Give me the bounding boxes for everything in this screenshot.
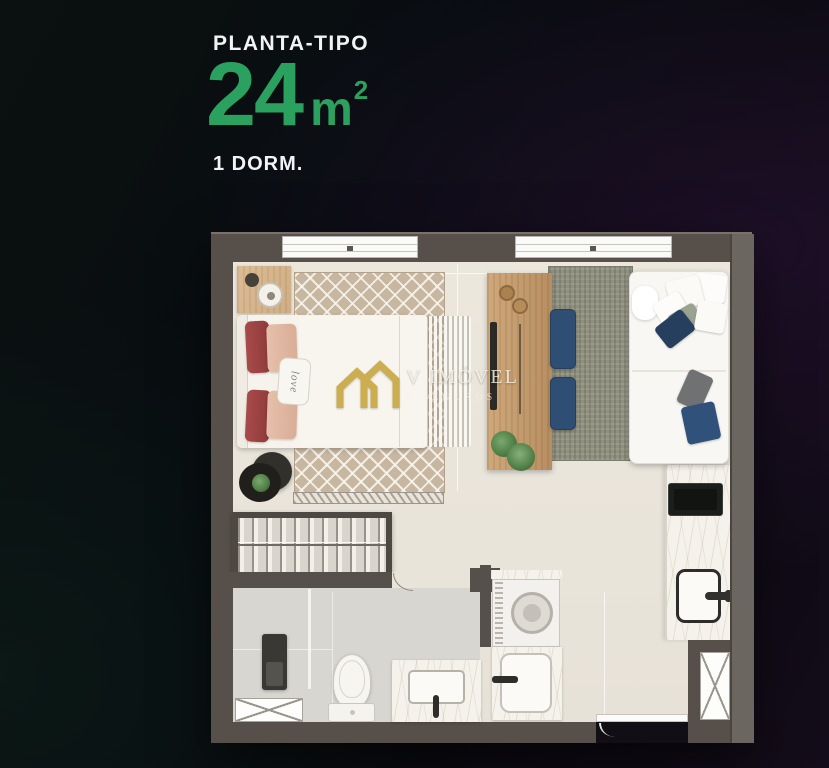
lamp-center: [267, 292, 275, 300]
duct-shaft: [700, 652, 730, 720]
washer-door: [511, 592, 553, 634]
window-latch: [590, 246, 596, 251]
tile-grout-line: [604, 592, 605, 718]
window-frame-line: [283, 251, 417, 252]
sofa-seam-line: [632, 370, 726, 372]
area-exponent: 2: [354, 75, 368, 106]
washing-machine: [492, 579, 560, 647]
bathroom-wall: [228, 572, 392, 588]
shower-fixture-panel: [266, 662, 283, 686]
shaft-cross-line: [236, 699, 302, 721]
wood-decor-bowl: [499, 285, 515, 301]
toilet-seat: [339, 660, 365, 698]
nightstand-decor: [245, 273, 259, 287]
toilet-tank: [328, 703, 375, 722]
duct-shaft: [235, 698, 303, 722]
listing-floorplan-page: PLANTA-TIPO 24 m 2 1 DORM.: [0, 0, 829, 768]
navy-cushion: [680, 401, 721, 445]
potted-plant: [507, 443, 535, 471]
tile-grout-line: [332, 592, 333, 718]
watermark-brand: V IMÓVEL: [406, 366, 519, 389]
navy-pouf: [550, 309, 576, 369]
cooktop: [668, 483, 723, 516]
vanity-faucet: [433, 695, 439, 718]
laundry-partition-wall: [480, 565, 491, 647]
wardrobe: [232, 512, 392, 579]
living-window: [515, 236, 672, 258]
shaft-cross-line: [701, 653, 729, 719]
washer-control-panel: [495, 582, 503, 644]
dormitory-count-label: 1 DORM.: [213, 153, 303, 176]
cooktop-surface: [674, 489, 717, 510]
toilet: [333, 654, 371, 708]
brand-watermark: V IMÓVEL E SEGUROS: [336, 352, 536, 416]
bedroom-window: [282, 236, 418, 258]
entrance-door: [596, 714, 688, 722]
sofa: [629, 271, 729, 464]
toilet-flush-button: [350, 710, 355, 715]
shower-fixture: [262, 634, 287, 690]
washer-door-center: [523, 604, 541, 622]
area-heading: 24 m 2: [206, 50, 368, 140]
shower-glass-partition: [308, 589, 311, 689]
laundry-basin: [500, 653, 552, 713]
closet-sliding-door: [293, 492, 444, 504]
bathroom-vanity: [392, 660, 481, 722]
wardrobe-rail: [238, 544, 386, 546]
watermark-tagline: E SEGUROS: [406, 392, 519, 403]
window-latch: [347, 246, 353, 251]
floorplan: love: [211, 232, 752, 743]
nightstand: [237, 266, 291, 313]
love-pillow: love: [276, 357, 311, 406]
laundry-counter: [491, 570, 562, 579]
laundry-faucet: [492, 676, 518, 683]
table-lamp: [257, 282, 283, 308]
wardrobe-rail-highlight: [238, 542, 386, 543]
window-frame-line: [516, 251, 671, 252]
watermark-texts: V IMÓVEL E SEGUROS: [406, 366, 519, 403]
area-number: 24: [206, 50, 302, 140]
love-pillow-text: love: [287, 370, 301, 393]
window-frame-line: [283, 244, 417, 245]
laundry-sink-unit: [492, 647, 562, 720]
area-unit: m: [310, 86, 353, 134]
succulent-plant: [252, 474, 270, 492]
wood-decor-bowl: [512, 298, 528, 314]
double-house-logo-icon: [336, 358, 400, 410]
window-frame-line: [516, 244, 671, 245]
navy-pouf: [550, 377, 576, 430]
white-cushion: [694, 300, 729, 335]
exterior-wall-right: [730, 234, 754, 743]
